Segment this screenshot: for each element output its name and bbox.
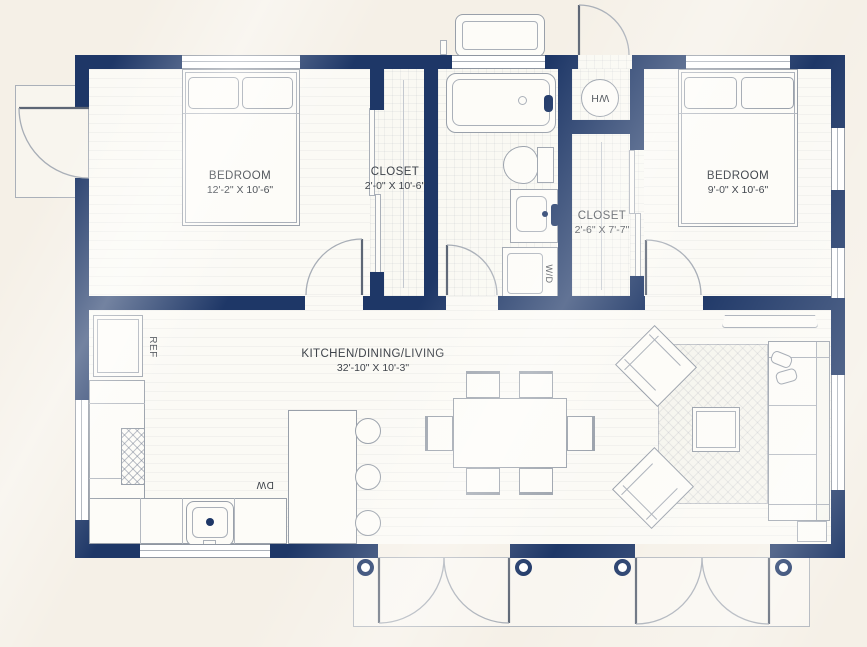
room-name: BEDROOM <box>160 169 320 184</box>
room-name: KITCHEN/DINING/LIVING <box>272 347 474 362</box>
room-dims: 2'-6" X 7'-7" <box>542 224 662 238</box>
french-door-swing <box>702 558 769 624</box>
room-label-bedroom-left: BEDROOM 12'-2" X 10'-6" <box>160 169 320 198</box>
french-door-swing <box>379 558 444 623</box>
room-dims: 12'-2" X 10'-6" <box>160 184 320 198</box>
room-name: BEDROOM <box>658 169 818 184</box>
room-label-bedroom-right: BEDROOM 9'-0" X 10'-6" <box>658 169 818 198</box>
french-door-swing <box>444 558 509 623</box>
door-swing <box>646 240 701 295</box>
refrigerator-label: REF <box>135 339 171 355</box>
room-label-closet-right: CLOSET 2'-6" X 7'-7" <box>542 209 662 238</box>
room-dims: 2'-0" X 10'-6" <box>335 180 455 194</box>
door-swing <box>19 108 89 178</box>
french-door-swing <box>636 558 702 624</box>
room-name: CLOSET <box>542 209 662 224</box>
room-label-main: KITCHEN/DINING/LIVING 32'-10" X 10'-3" <box>272 347 474 376</box>
room-name: CLOSET <box>335 165 455 180</box>
door-swing <box>306 239 362 295</box>
room-dims: 32'-10" X 10'-3" <box>272 362 474 376</box>
floor-plan: W/D WH REF DW <box>0 0 867 647</box>
dishwasher-label: DW <box>248 477 282 493</box>
room-label-closet-left: CLOSET 2'-0" X 10'-6" <box>335 165 455 194</box>
water-heater-label: WH <box>581 79 619 117</box>
washer-dryer-label: W/D <box>533 266 565 282</box>
door-swing <box>579 5 629 55</box>
room-dims: 9'-0" X 10'-6" <box>658 184 818 198</box>
door-swings-layer <box>0 0 867 647</box>
door-swing <box>447 245 497 295</box>
